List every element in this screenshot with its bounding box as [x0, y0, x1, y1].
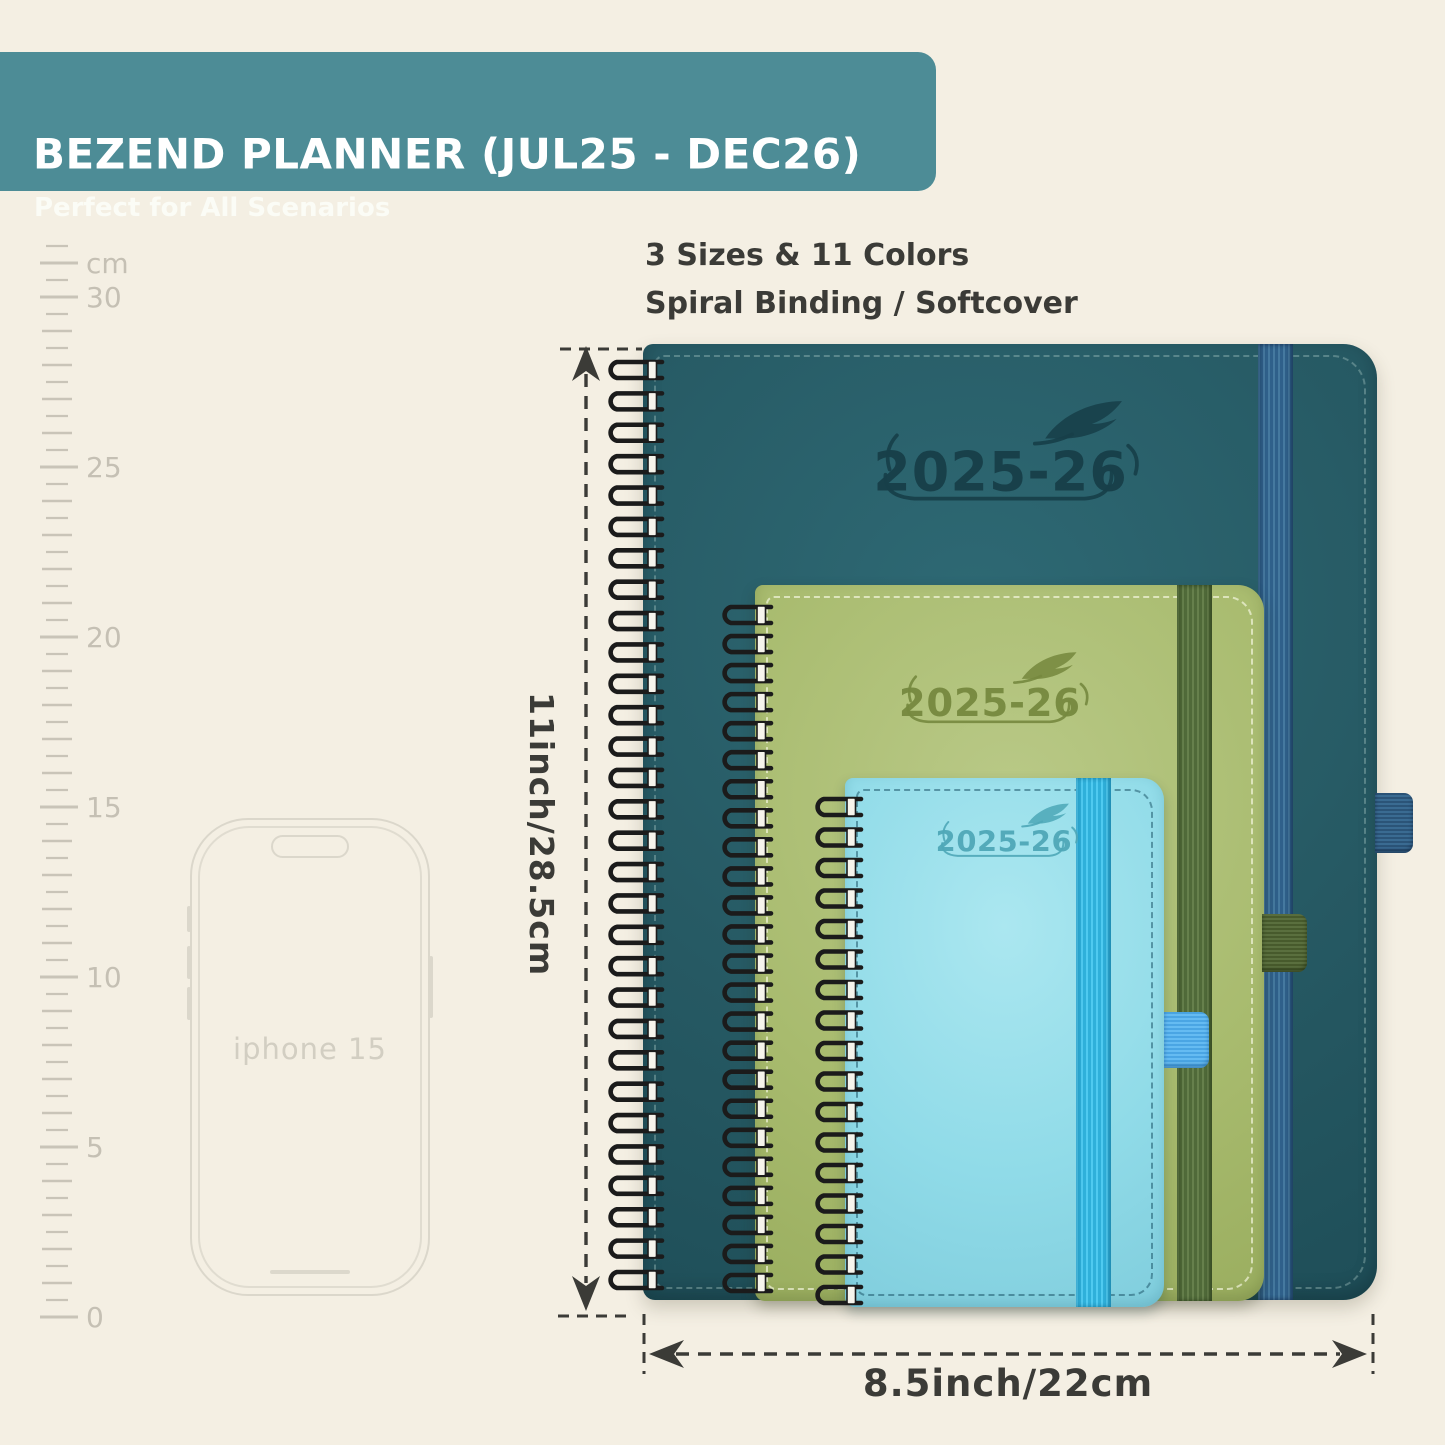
- svg-text:2025-26: 2025-26: [936, 824, 1072, 858]
- page-subtitle: Perfect for All Scenarios: [34, 193, 390, 223]
- planner-medium-logo: 2025-26: [898, 650, 1098, 734]
- planner-large-spiral-binding: [598, 350, 678, 1304]
- product-infographic: BEZEND PLANNER (JUL25 - DEC26) Perfect f…: [0, 0, 1445, 1445]
- iphone-mute-switch: [187, 906, 191, 932]
- page-title: BEZEND PLANNER (JUL25 - DEC26): [33, 130, 861, 179]
- svg-text:5: 5: [86, 1131, 104, 1164]
- feather-icon: [1028, 804, 1069, 824]
- planner-small-spiral-binding: [806, 790, 872, 1314]
- planner-large-logo: 2025-26: [872, 398, 1152, 514]
- arrow-left-icon: [649, 1340, 684, 1368]
- feature-line-sizes: 3 Sizes & 11 Colors: [645, 232, 1078, 280]
- logo-right-bracket: [1072, 828, 1077, 843]
- iphone-label: iphone 15: [192, 1032, 428, 1066]
- feather-icon: [1045, 401, 1122, 438]
- svg-text:10: 10: [86, 961, 122, 994]
- arrow-right-icon: [1332, 1340, 1367, 1368]
- width-dimension-label: 8.5inch/22cm: [808, 1362, 1208, 1405]
- svg-text:20: 20: [86, 621, 122, 654]
- planner-medium-pen-loop: [1262, 914, 1307, 972]
- feather-icon: [1022, 652, 1077, 679]
- ruler-scale: 302520151050cm: [28, 240, 168, 1345]
- height-dimension-label: 11inch/28.5cm: [522, 692, 561, 972]
- arrow-down-icon: [572, 1276, 600, 1311]
- svg-text:2025-26: 2025-26: [873, 440, 1128, 503]
- feature-line-binding: Spiral Binding / Softcover: [645, 280, 1078, 328]
- planner-medium-spiral-binding: [713, 600, 783, 1299]
- planner-medium-strap: [1177, 585, 1212, 1301]
- planner-small-pen-loop: [1164, 1012, 1209, 1068]
- svg-text:cm: cm: [86, 247, 129, 280]
- iphone-volume-down-button: [187, 987, 191, 1020]
- svg-text:30: 30: [86, 281, 122, 314]
- feature-text: 3 Sizes & 11 Colors Spiral Binding / Sof…: [645, 232, 1078, 328]
- logo-right-bracket: [1081, 684, 1087, 704]
- svg-text:25: 25: [86, 451, 122, 484]
- svg-text:0: 0: [86, 1301, 104, 1334]
- logo-right-bracket: [1128, 446, 1137, 474]
- iphone-dynamic-island: [271, 835, 349, 858]
- svg-text:15: 15: [86, 791, 122, 824]
- iphone-outline: iphone 15: [190, 818, 430, 1296]
- header-banner: BEZEND PLANNER (JUL25 - DEC26) Perfect f…: [0, 52, 936, 191]
- iphone-power-button: [429, 956, 433, 1018]
- iphone-volume-up-button: [187, 946, 191, 979]
- svg-text:2025-26: 2025-26: [899, 681, 1081, 726]
- iphone-bottom-port: [270, 1270, 350, 1274]
- planner-small-logo: 2025-26: [935, 802, 1085, 866]
- planner-large-pen-loop: [1375, 793, 1413, 853]
- arrow-up-icon: [572, 346, 600, 381]
